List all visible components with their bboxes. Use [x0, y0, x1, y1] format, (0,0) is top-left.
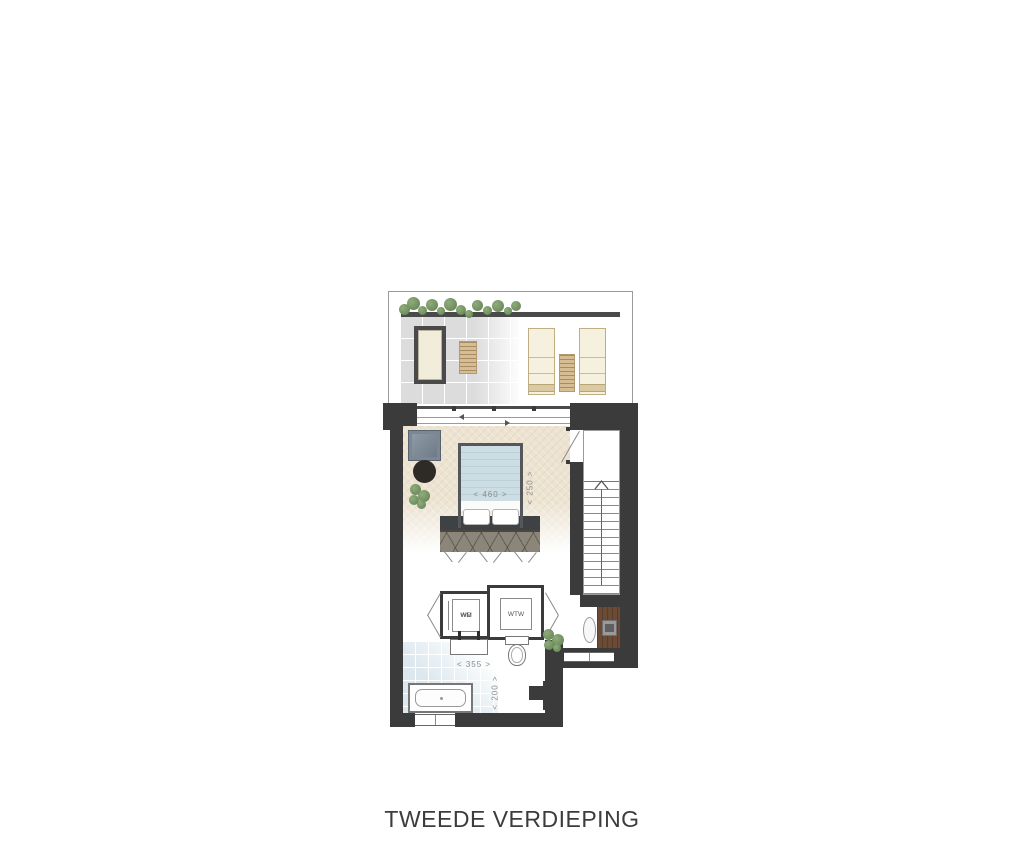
terrace-plants	[399, 294, 529, 330]
wall-bottom-right	[455, 713, 563, 727]
plant-leaf	[472, 300, 483, 311]
hallway-plant	[541, 628, 567, 654]
wood-mat	[559, 354, 575, 392]
ventilation-unit: WTW	[500, 598, 532, 630]
plant-leaf	[465, 310, 473, 318]
plant-leaf	[483, 306, 492, 315]
wardrobe	[440, 530, 540, 552]
sliding-door-panel-tick	[532, 406, 536, 411]
bathtub-basin	[415, 689, 466, 707]
sliding-door-panel-tick	[452, 406, 456, 411]
plant-leaf	[417, 500, 426, 509]
floor-plan-page: < 460 > < 250 >	[0, 0, 1024, 853]
laptop-screen	[605, 624, 614, 632]
bedroom-plant	[408, 482, 434, 510]
bed-width-dimension: < 460 >	[461, 490, 520, 499]
wall-bottom-left	[390, 713, 415, 727]
shower-fixture	[529, 686, 543, 700]
ventilation-closet: WTW	[487, 585, 544, 640]
shower-wall-bar	[543, 681, 546, 710]
window-desk	[564, 652, 614, 662]
wall-right	[620, 430, 638, 668]
ventilation-label: WTW	[508, 611, 524, 618]
lounge-chair-seam	[580, 373, 605, 374]
bathtub-drain	[440, 697, 443, 700]
window-mullion	[435, 715, 436, 725]
sliding-door-rail	[417, 423, 570, 424]
plan-title: TWEEDE VERDIEPING	[0, 806, 1024, 833]
plant-leaf	[553, 644, 561, 652]
window-mullion	[589, 653, 590, 661]
wall-left	[390, 403, 403, 727]
door-jamb	[566, 460, 570, 464]
bifold-door-left	[427, 593, 441, 616]
sliding-door-panel-tick	[492, 406, 496, 411]
sliding-door	[417, 406, 570, 428]
basin-tap	[477, 631, 480, 640]
plant-leaf	[511, 301, 521, 311]
bathtub	[408, 683, 473, 713]
wall-terrace-right	[570, 403, 638, 430]
lounge-chair	[528, 328, 555, 395]
bed-pillow	[492, 509, 519, 525]
cabinet	[408, 430, 441, 461]
wood-mat	[459, 341, 477, 374]
sliding-door-arrow	[459, 414, 464, 420]
stairwell	[583, 430, 620, 595]
basin-tap	[458, 631, 461, 640]
toilet-bowl	[508, 644, 526, 666]
dryer-label: WD	[461, 612, 472, 619]
toilet-seat	[511, 647, 523, 663]
bed-depth-dimension: < 250 >	[526, 463, 535, 513]
washer-dryer-unit: WM WD	[452, 599, 480, 632]
door-jamb	[566, 427, 570, 431]
terrace	[388, 291, 633, 403]
lounge-chair-seam	[529, 357, 554, 358]
bed: < 460 >	[458, 443, 523, 528]
wall-stairwell	[570, 462, 583, 595]
laptop	[602, 620, 617, 636]
window-bathroom	[415, 714, 455, 726]
plant-leaf	[492, 300, 504, 312]
round-stool	[413, 460, 436, 483]
sliding-door-rail	[417, 417, 570, 418]
bifold-door-left	[427, 615, 441, 638]
washbasin	[450, 639, 488, 655]
terrace-tile-fade	[474, 317, 534, 404]
appliance-door-line	[448, 601, 449, 630]
lounge-chair-footrest	[529, 384, 554, 392]
bifold-door-right	[545, 593, 559, 616]
floor-plan: < 460 > < 250 >	[383, 290, 638, 727]
stairs-up-arrow	[584, 477, 619, 592]
skylight-window	[414, 326, 446, 384]
washer-dryer-closet: WM WD	[440, 591, 490, 639]
lounge-chair-seam	[529, 373, 554, 374]
lounge-chair-footrest	[580, 384, 605, 392]
cabinet-top	[412, 434, 437, 457]
wall-below-stairs	[580, 593, 620, 607]
lounge-chair-seam	[580, 357, 605, 358]
bed-pillow	[463, 509, 490, 525]
bathroom-depth-dimension: < 200 >	[491, 668, 500, 718]
lounge-chair	[579, 328, 606, 395]
desk-chair	[583, 617, 596, 643]
plant-leaf	[437, 307, 445, 315]
skylight-glass	[418, 330, 442, 380]
